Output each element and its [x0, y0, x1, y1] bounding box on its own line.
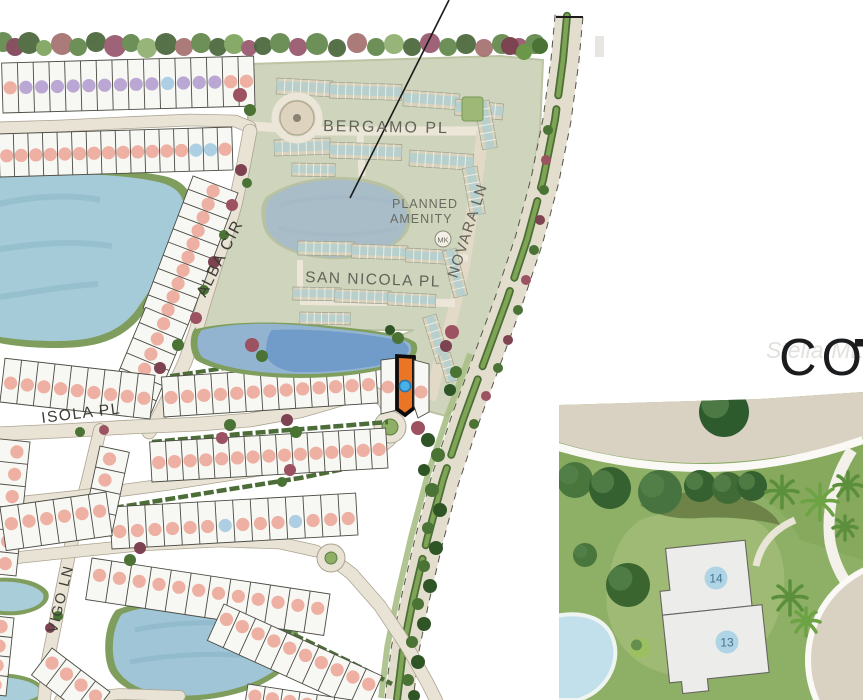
svg-text:13: 13: [720, 636, 734, 650]
svg-text:14: 14: [709, 572, 723, 586]
svg-text:MK: MK: [437, 236, 448, 245]
svg-text:AMENITY: AMENITY: [390, 212, 453, 226]
svg-text:BERGAMO PL: BERGAMO PL: [323, 118, 449, 137]
svg-text:CO: CO: [779, 329, 863, 387]
svg-text:PLANNED: PLANNED: [392, 197, 458, 211]
